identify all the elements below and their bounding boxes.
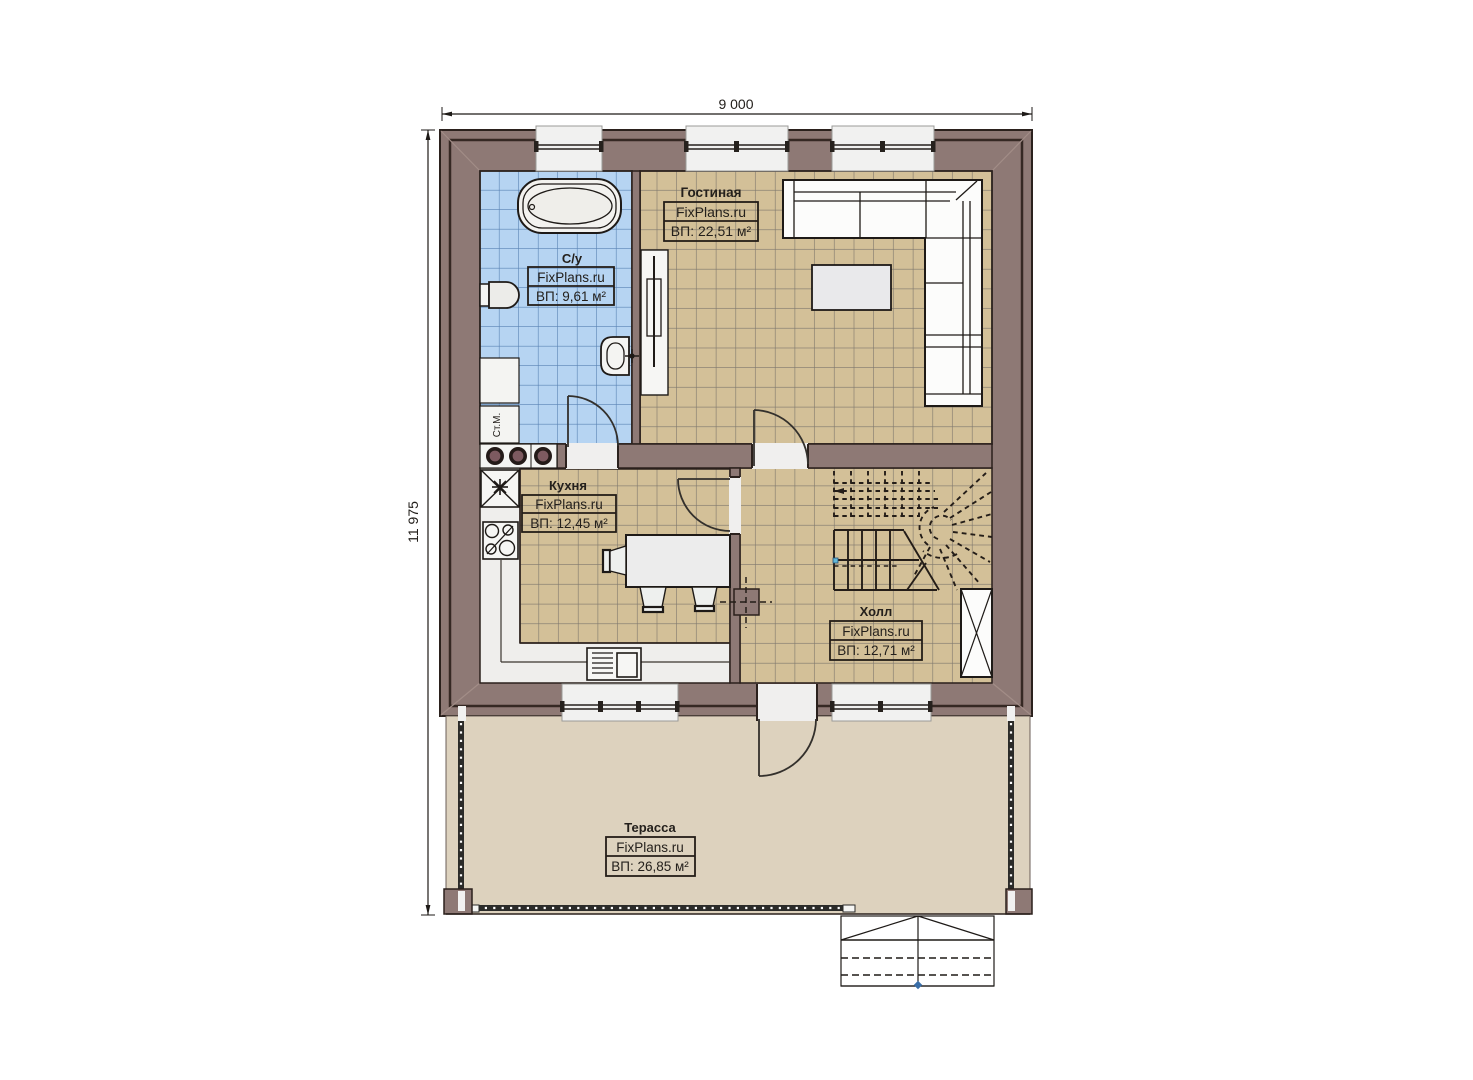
svg-text:FixPlans.ru: FixPlans.ru bbox=[616, 840, 684, 855]
svg-text:9 000: 9 000 bbox=[718, 96, 753, 112]
svg-text:ВП: 9,61 м²: ВП: 9,61 м² bbox=[536, 289, 607, 304]
svg-text:ВП: 22,51 м²: ВП: 22,51 м² bbox=[671, 223, 752, 239]
svg-text:Гостиная: Гостиная bbox=[680, 185, 741, 200]
svg-text:Кухня: Кухня bbox=[549, 478, 587, 493]
svg-text:Терасса: Терасса bbox=[624, 820, 676, 835]
svg-text:FixPlans.ru: FixPlans.ru bbox=[537, 270, 605, 285]
svg-text:Холл: Холл bbox=[860, 604, 893, 619]
svg-text:11 975: 11 975 bbox=[405, 501, 421, 543]
svg-text:Ст.М.: Ст.М. bbox=[492, 413, 503, 438]
svg-text:ВП: 26,85 м²: ВП: 26,85 м² bbox=[611, 859, 689, 874]
svg-text:FixPlans.ru: FixPlans.ru bbox=[535, 497, 603, 512]
svg-text:ВП: 12,45 м²: ВП: 12,45 м² bbox=[530, 516, 608, 531]
svg-text:С/у: С/у bbox=[562, 251, 583, 266]
svg-text:ВП: 12,71 м²: ВП: 12,71 м² bbox=[837, 643, 915, 658]
svg-text:FixPlans.ru: FixPlans.ru bbox=[676, 204, 746, 220]
svg-text:FixPlans.ru: FixPlans.ru bbox=[842, 624, 910, 639]
